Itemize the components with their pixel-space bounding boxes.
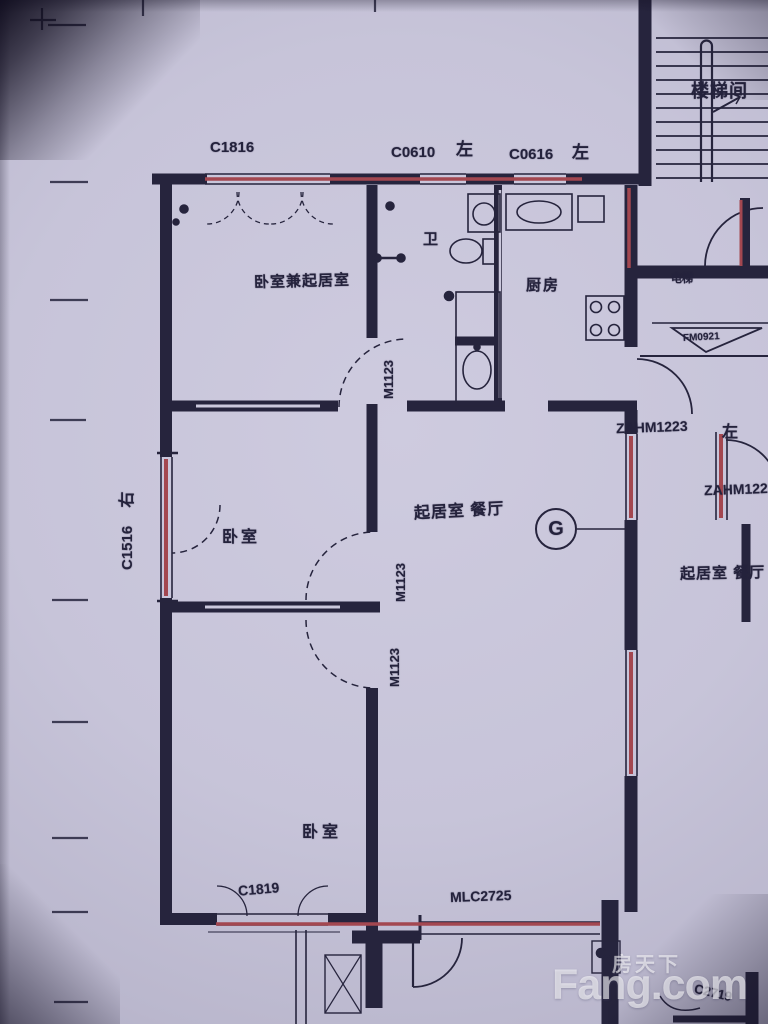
- room-label-living-dining-right: 起居室 餐厅: [680, 565, 765, 581]
- direction-label-right: 右: [119, 492, 136, 508]
- window-label-c0610: C0610: [391, 145, 435, 160]
- room-label-bath: 卫: [423, 232, 438, 247]
- walls-right: [352, 0, 768, 937]
- door-label-m1123-bedroom2: M1123: [394, 563, 407, 602]
- window-lines: [157, 174, 768, 940]
- direction-label-left-3: 左: [722, 425, 738, 441]
- door-label-zahm1223-a: ZAHM1223: [616, 419, 688, 435]
- door-label-m1123-bath: M1123: [382, 360, 395, 399]
- floorplan-linework: [0, 0, 768, 1024]
- room-label-stairwell: 楼梯间: [691, 82, 748, 100]
- window-label-c1819: C1819: [237, 880, 279, 898]
- red-marker-lines: [166, 179, 741, 924]
- dimension-ticks: [30, 0, 375, 1002]
- room-label-elevator: 电梯: [671, 274, 693, 285]
- window-label-c1516: C1516 右: [120, 492, 136, 570]
- direction-label-left-2: 左: [572, 144, 589, 161]
- window-label-c0616: C0616: [509, 147, 553, 162]
- door-label-m1123-bedroom3: M1123: [388, 648, 401, 687]
- casement-arcs: [207, 192, 333, 224]
- axis-label-g: G: [548, 519, 564, 539]
- door-label-zahm1223-b: ZAHM1223: [704, 481, 768, 497]
- window-label-c1516-code: C1516: [119, 526, 136, 570]
- window-label-c1816: C1816: [210, 140, 254, 155]
- wash-basin: [463, 351, 491, 389]
- door-label-fm0921: FM0921: [683, 332, 720, 344]
- room-label-bedroom-living: 卧室兼起居室: [254, 273, 350, 291]
- room-label-kitchen: 厨房: [526, 278, 560, 293]
- staircase: [656, 38, 768, 182]
- door-label-mlc2725: MLC2725: [450, 888, 512, 904]
- walls-balcony: [374, 900, 610, 1024]
- door-arcs: [217, 208, 768, 987]
- room-label-bedroom-bottom: 卧室: [302, 825, 342, 841]
- toilet: [450, 239, 482, 263]
- floorplan-photo: C1816 C0610 左 C0616 左 楼梯间 卧室兼起居室 卫 厨房 M1…: [0, 0, 768, 1024]
- room-label-bedroom-mid: 卧室: [222, 530, 260, 546]
- direction-label-left-1: 左: [456, 141, 473, 158]
